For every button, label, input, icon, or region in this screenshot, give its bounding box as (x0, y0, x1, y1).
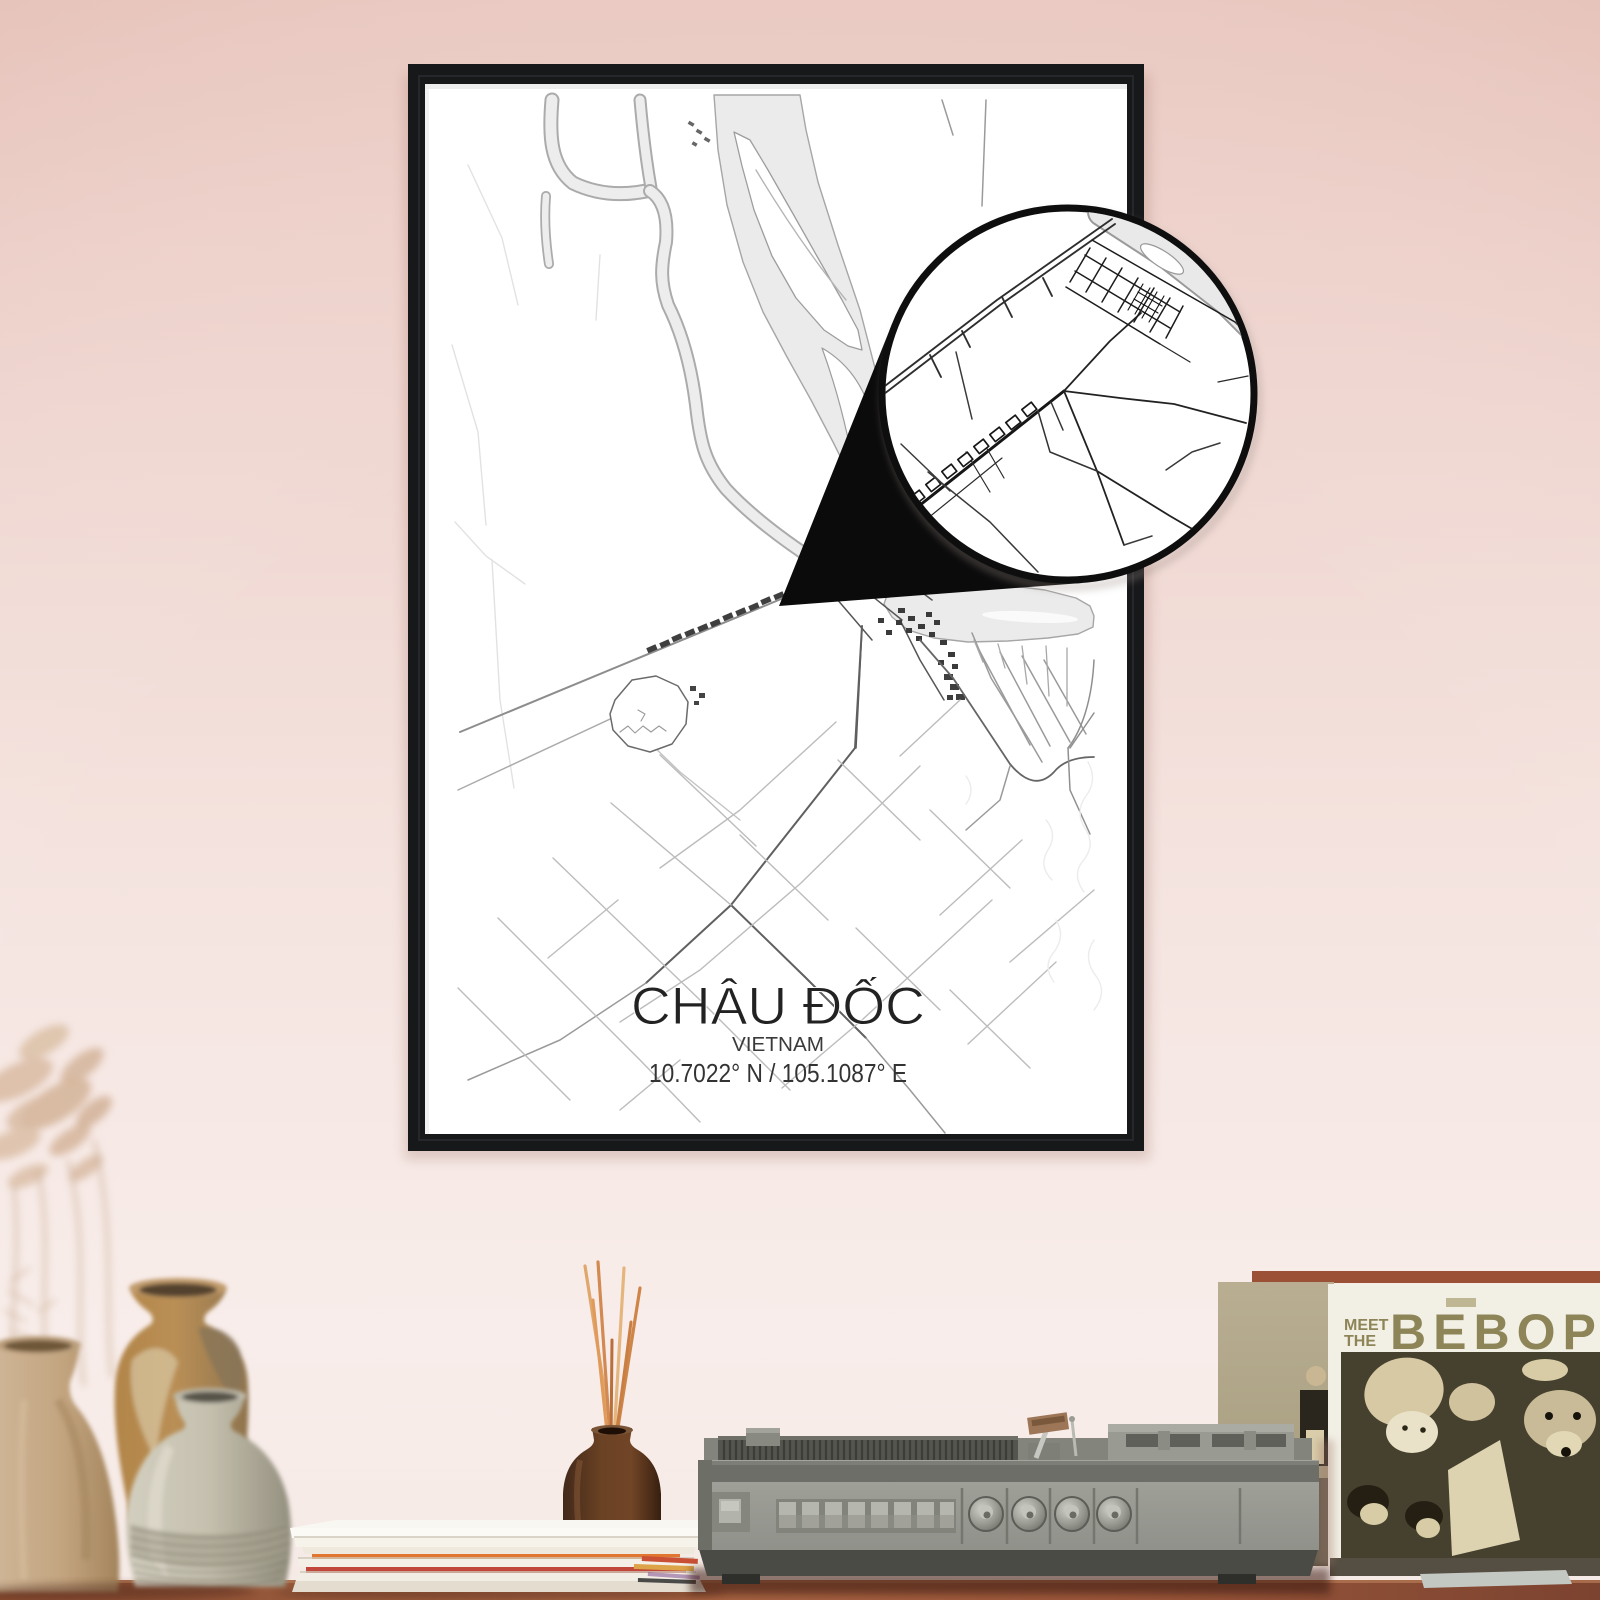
svg-text:MEET: MEET (1344, 1317, 1389, 1334)
svg-text:CHÂU ĐỐC: CHÂU ĐỐC (631, 976, 925, 1036)
svg-text:THE: THE (1344, 1333, 1376, 1350)
svg-text:BEBOP: BEBOP (1390, 1304, 1600, 1360)
svg-text:10.7022° N / 105.1087° E: 10.7022° N / 105.1087° E (649, 1058, 907, 1088)
svg-text:VIETNAM: VIETNAM (732, 1034, 824, 1056)
